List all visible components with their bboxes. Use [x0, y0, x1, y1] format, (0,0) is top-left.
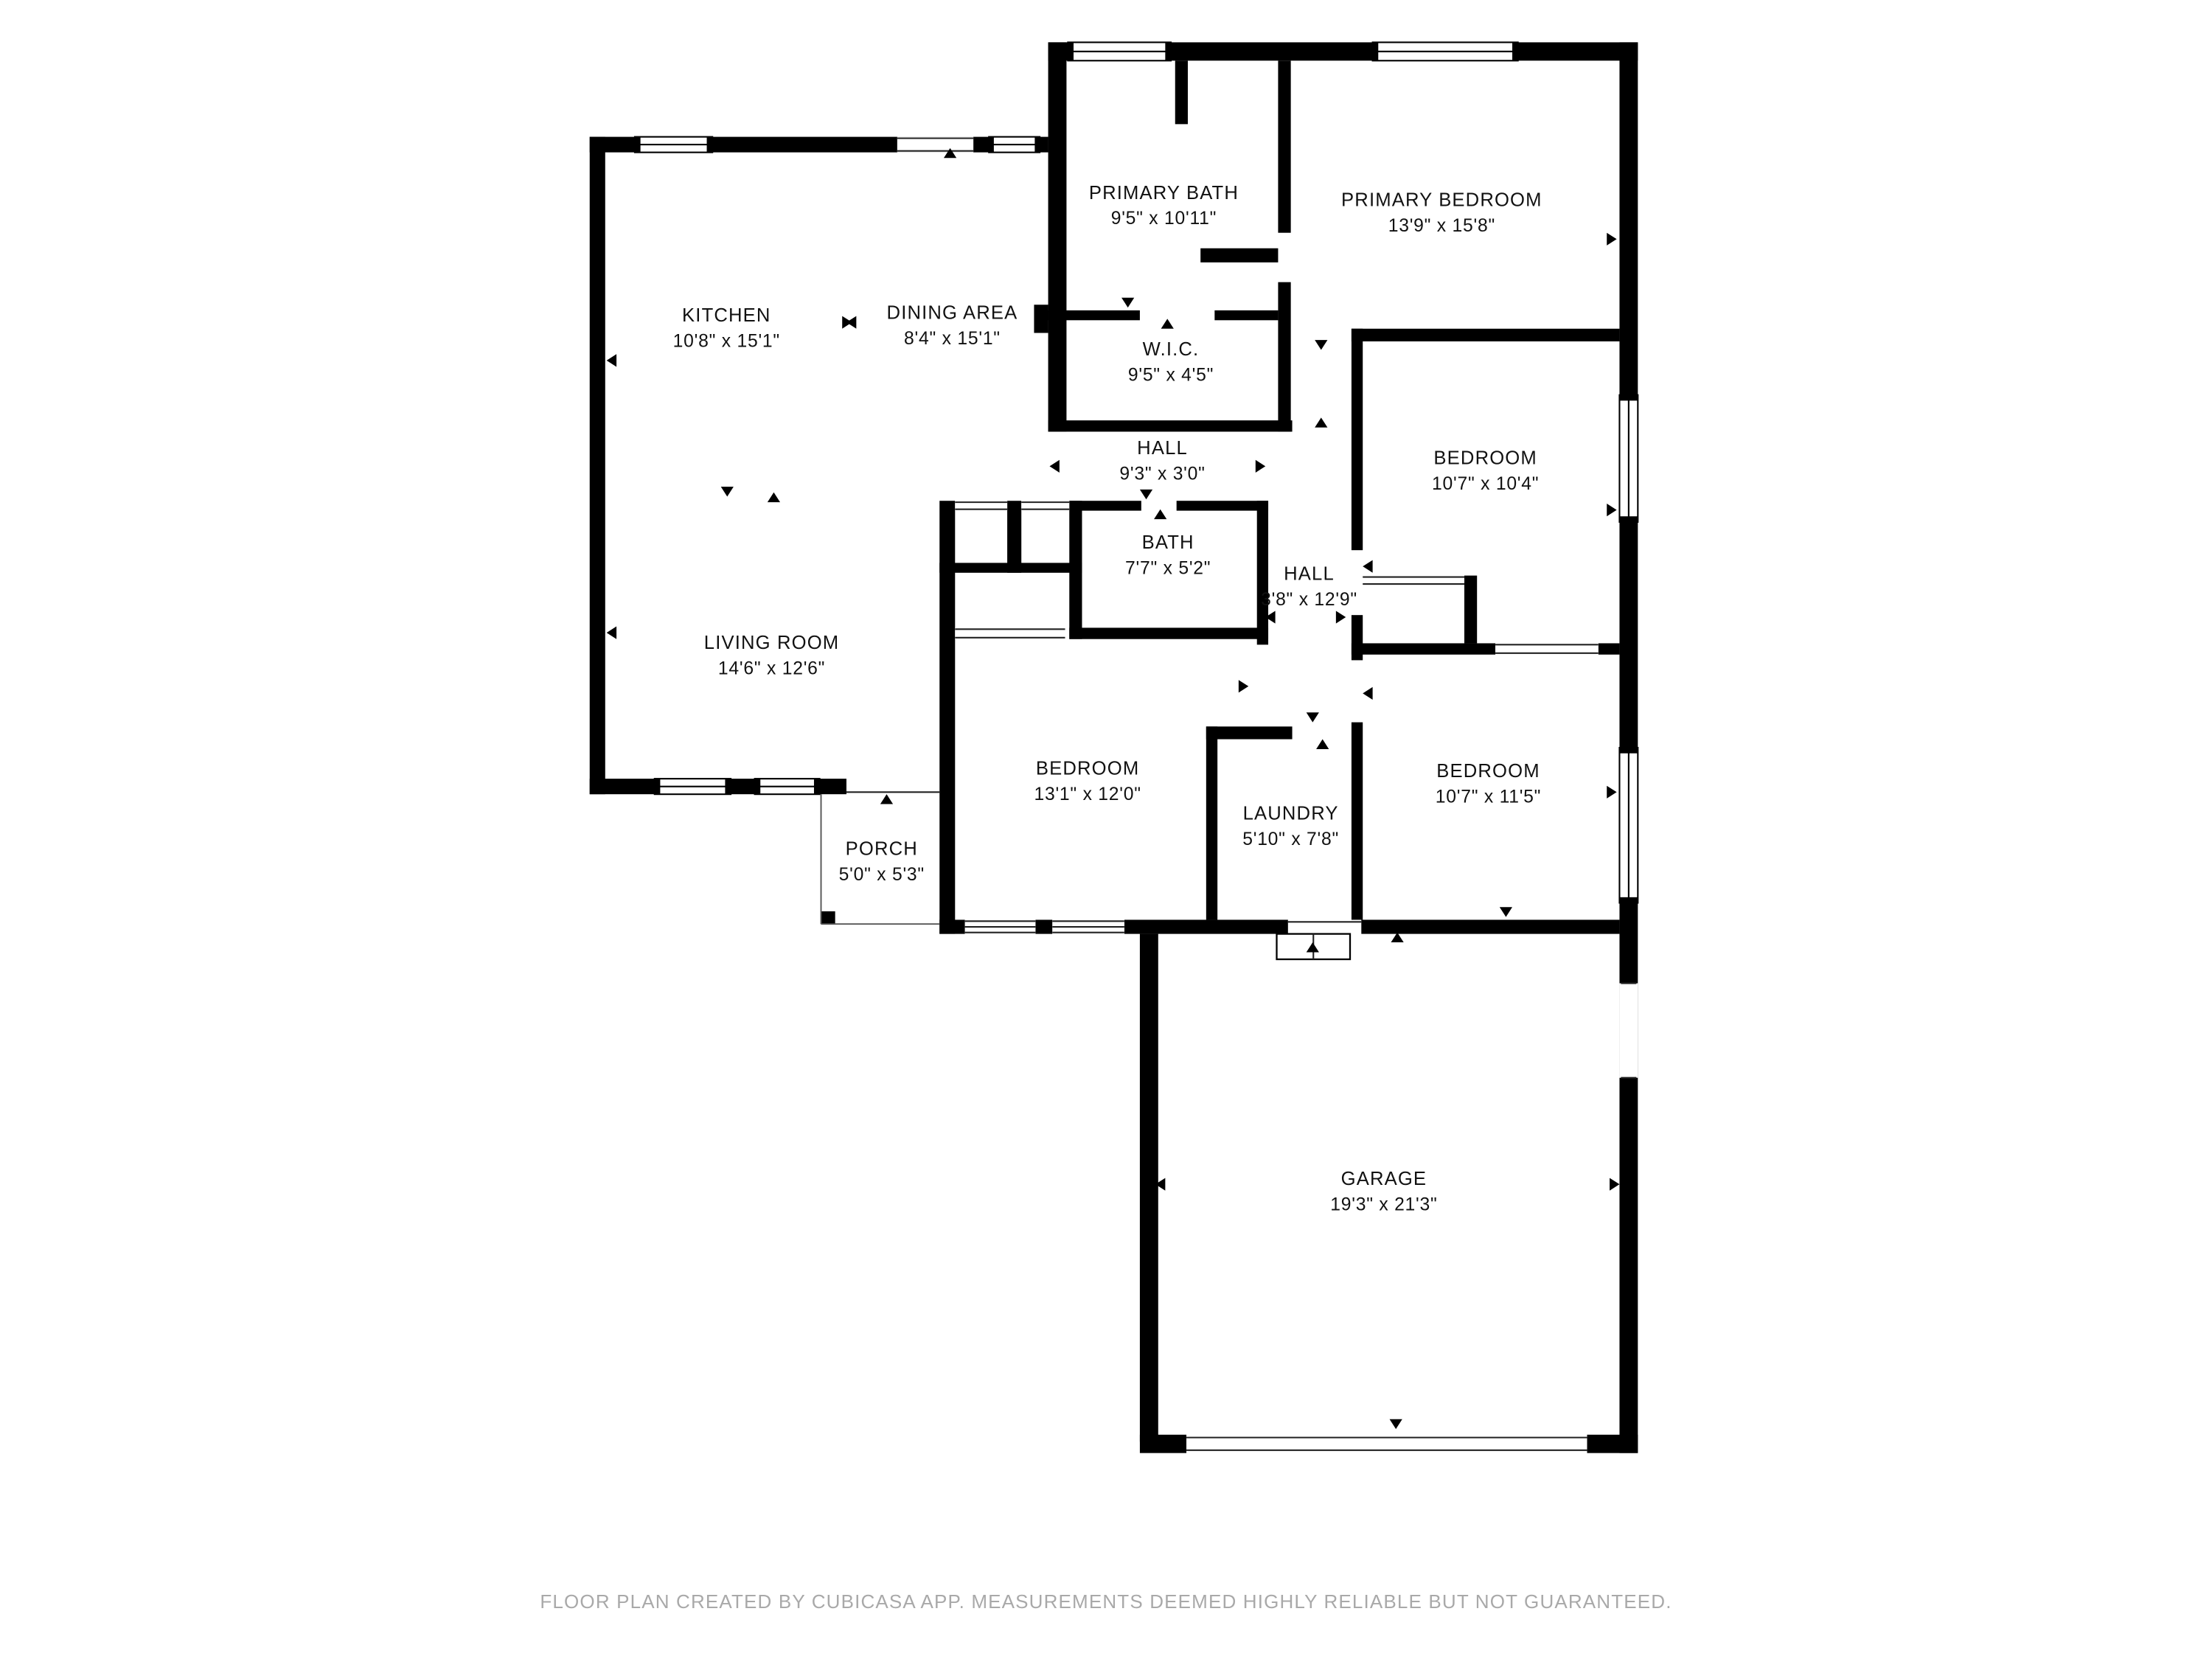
window-living-2: [755, 779, 820, 794]
label-dining-area: DINING AREA: [887, 302, 1018, 323]
wall-wic-top-right: [1214, 310, 1278, 320]
label-hall-upper: HALL: [1137, 438, 1188, 459]
dims-living-room: 14'6" x 12'6": [718, 659, 825, 679]
label-kitchen: KITCHEN: [682, 305, 771, 326]
wall-bath-bottom: [1069, 627, 1268, 639]
wall-bedroom2-top-left: [1352, 643, 1495, 654]
closet-door-band-1: [955, 501, 1007, 510]
label-garage: GARAGE: [1341, 1169, 1427, 1189]
wall-wic-top-left: [1048, 310, 1140, 320]
dims-bedroom-mid: 13'1" x 12'0": [1034, 785, 1141, 804]
label-bedroom-right-2: BEDROOM: [1436, 761, 1540, 782]
wall-wic-bottom: [1048, 420, 1293, 431]
label-wic: W.I.C.: [1143, 339, 1200, 360]
dims-garage: 19'3" x 21'3": [1330, 1195, 1437, 1215]
window-primary-bedroom: [1373, 42, 1518, 60]
garage-door-band: [1186, 1435, 1587, 1453]
closet-door-band-2: [1021, 501, 1069, 510]
window-dining: [989, 137, 1040, 153]
plan-background: [0, 0, 2212, 1659]
wall-closet-bottom: [939, 563, 1082, 572]
dims-bath: 7'7" x 5'2": [1125, 559, 1211, 579]
dims-kitchen: 10'8" x 15'1": [673, 332, 780, 352]
wall-south-d: [1361, 919, 1619, 933]
label-primary-bath: PRIMARY BATH: [1089, 183, 1239, 204]
dims-laundry: 5'10" x 7'8": [1242, 829, 1339, 849]
wall-bath-right: [1257, 501, 1268, 644]
bedroom-passthrough-band: [955, 627, 1065, 639]
dims-hall-vertical: 3'8" x 12'9": [1261, 590, 1357, 610]
window-bedroom1-right: [1619, 395, 1638, 522]
south-window-1: [965, 919, 1036, 933]
wall-left-exterior: [590, 137, 605, 795]
wall-divider-upper: [1278, 60, 1290, 232]
window-garage-right: [1619, 984, 1638, 1078]
floor-plan-canvas: PRIMARY BATH 9'5" x 10'11" PRIMARY BEDRO…: [0, 0, 2212, 1659]
wall-divider-lower: [1278, 282, 1290, 432]
wall-garage-bottom-left: [1140, 1435, 1186, 1453]
wall-shower-stub: [1200, 248, 1278, 262]
wall-bedroom2-top-right: [1599, 643, 1620, 654]
footer-disclaimer: FLOOR PLAN CREATED BY CUBICASA APP. MEAS…: [540, 1590, 1672, 1613]
wall-south-b: [1035, 919, 1052, 933]
wall-bath-top-right: [1177, 501, 1268, 510]
dims-primary-bath: 9'5" x 10'11": [1111, 209, 1217, 229]
closetzone-band-b: [1495, 643, 1599, 654]
label-bath: BATH: [1142, 532, 1194, 553]
label-living-room: LIVING ROOM: [704, 633, 839, 653]
label-hall-vertical: HALL: [1284, 563, 1335, 584]
wall-laundry-left: [1206, 726, 1217, 919]
label-porch: PORCH: [846, 838, 918, 859]
wall-column-a: [1352, 329, 1363, 550]
wall-garage-bottom-right: [1587, 1435, 1638, 1453]
wall-closetzone-stub: [1464, 576, 1477, 644]
dims-wic: 9'5" x 4'5": [1128, 366, 1214, 386]
wall-porch-stub: [821, 911, 835, 924]
wall-bath-top-left: [1069, 501, 1141, 510]
closetzone-band-a: [1363, 576, 1464, 585]
window-primary-bath: [1068, 42, 1171, 60]
wall-bedroom1-top: [1352, 329, 1620, 341]
dims-primary-bedroom: 13'9" x 15'8": [1388, 216, 1495, 236]
label-laundry: LAUNDRY: [1243, 804, 1339, 824]
wall-laundry-top: [1206, 726, 1293, 739]
wall-bath-stub: [1175, 60, 1188, 124]
wall-garage-left: [1140, 934, 1158, 1442]
dims-dining-area: 8'4" x 15'1": [904, 329, 1001, 349]
dims-porch: 5'0" x 5'3": [839, 865, 925, 885]
dims-hall-upper: 9'3" x 3'0": [1119, 465, 1205, 484]
wall-south-a: [939, 919, 964, 933]
wall-column-c: [1352, 723, 1363, 920]
label-bedroom-mid: BEDROOM: [1036, 758, 1139, 779]
window-living-1: [655, 779, 731, 794]
dims-bedroom-right-1: 10'7" x 10'4": [1432, 474, 1539, 494]
window-bedroom2-right: [1619, 748, 1638, 902]
dims-bedroom-right-2: 10'7" x 11'5": [1436, 787, 1541, 807]
label-bedroom-right-1: BEDROOM: [1433, 448, 1537, 468]
kitchen-top-opening: [897, 137, 973, 153]
south-window-2: [1052, 919, 1124, 933]
wall-closet-divider: [1007, 501, 1021, 573]
label-primary-bedroom: PRIMARY BEDROOM: [1341, 189, 1543, 210]
window-kitchen: [635, 137, 712, 153]
wall-south-c: [1124, 919, 1288, 933]
